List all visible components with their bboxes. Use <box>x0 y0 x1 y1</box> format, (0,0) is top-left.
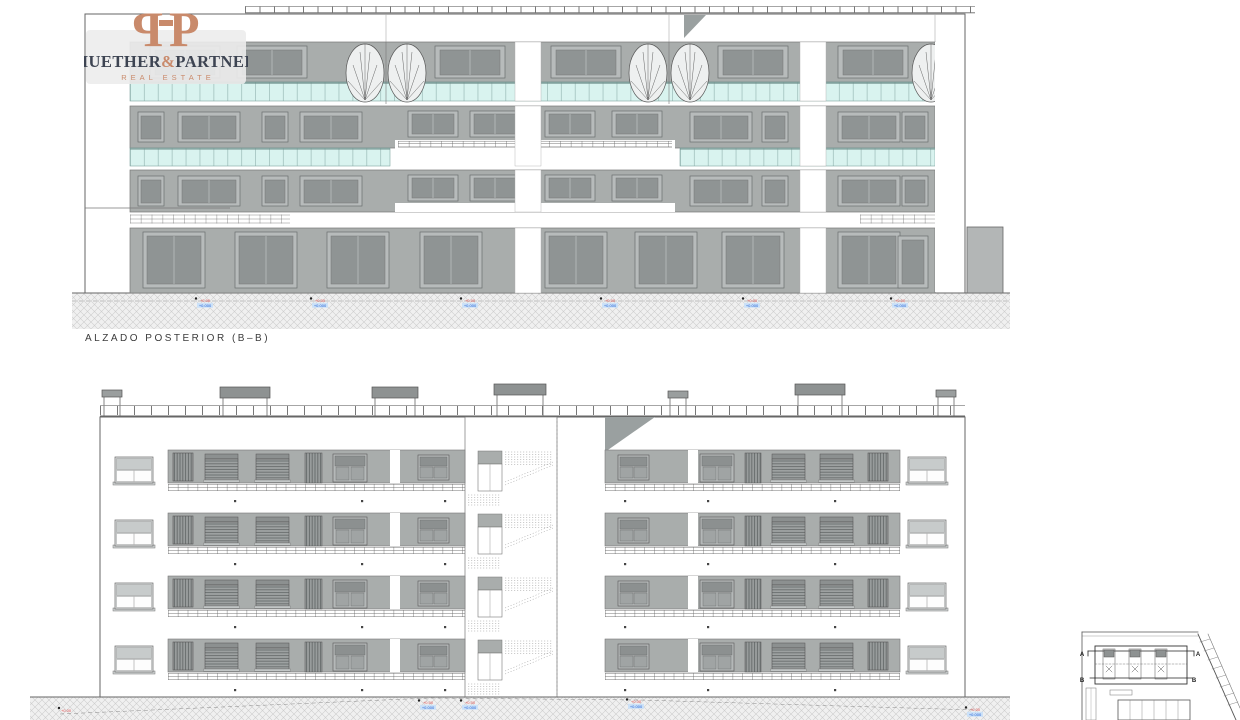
level-label: +0.000 <box>746 303 759 308</box>
logo-tagline: REAL ESTATE <box>121 73 214 82</box>
section-marker-a-right: A <box>1196 652 1201 658</box>
logo-name-second: PARTNER <box>175 52 248 71</box>
logo-graphic: P P HUETHER&PARTNER REAL ESTATE <box>84 0 248 86</box>
ground-hatch <box>72 293 1010 329</box>
level-label: +0.000 <box>464 303 477 308</box>
section-marker-b-left: B <box>1080 678 1085 684</box>
logo-name-first: HUETHER <box>84 52 162 71</box>
level-label: +0.000 <box>894 303 907 308</box>
level-label: +0.000 <box>314 303 327 308</box>
level-label: +0.000 <box>604 303 617 308</box>
side-elevation-drawing: +0.00 +0.000 +0.00 +0.000 +0.00 +0.000 +… <box>30 384 1010 720</box>
window-unit <box>435 46 505 78</box>
roof-railing <box>245 7 975 13</box>
monogram-left-glyph: P <box>132 1 163 57</box>
ground-hatch <box>30 697 1010 720</box>
logo: P P HUETHER&PARTNER REAL ESTATE <box>84 0 248 86</box>
section-marker-a-left: A <box>1080 652 1085 658</box>
section-marker-b-right: B <box>1192 678 1197 684</box>
window-unit <box>718 46 788 78</box>
monogram-hyphen <box>159 20 173 26</box>
spiral-stair-icon <box>629 42 709 104</box>
plan-label-box <box>1110 690 1132 695</box>
level-label: +0.000 <box>199 303 212 308</box>
level-label: +0.000 <box>464 705 477 710</box>
plot-boundary <box>1198 634 1236 720</box>
chimneys <box>102 384 956 417</box>
logo-ampersand: & <box>161 52 175 71</box>
elevations-drawing: +0.00 +0.000 +0.00 +0.000 +0.00 +0.000 +… <box>0 0 1240 720</box>
level-label: +0.000 <box>630 704 643 709</box>
site-key-plan: A A B B <box>1080 632 1240 720</box>
spiral-stair-icon <box>346 42 426 104</box>
level-label: +0.000 <box>969 712 982 717</box>
logo-wordmark: HUETHER&PARTNER <box>84 52 248 71</box>
rear-elevation-title: ALZADO POSTERIOR (B–B) <box>85 333 270 344</box>
road-hatch <box>1200 639 1238 705</box>
level-label: +0.00 <box>61 708 72 713</box>
window-unit <box>838 46 908 78</box>
window-unit <box>551 46 621 78</box>
level-label: +0.000 <box>422 705 435 710</box>
wall-margin <box>935 42 964 292</box>
drawing-sheet: P P HUETHER&PARTNER REAL ESTATE ALZADO P… <box>0 0 1240 720</box>
monogram-right-glyph: P <box>169 1 200 57</box>
annex-volume <box>967 227 1003 293</box>
